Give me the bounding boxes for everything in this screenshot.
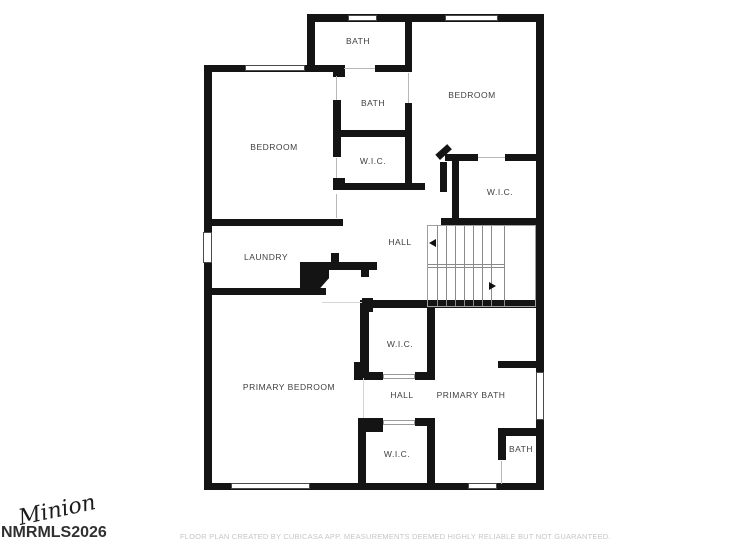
door-bathbottom [501, 461, 502, 484]
wall-hall-tab [331, 253, 339, 270]
stair-direction-arrow-down [489, 282, 496, 290]
stair-flight-divider [428, 264, 504, 265]
door-wicmid [336, 158, 337, 178]
stair-tread-line [491, 226, 492, 306]
room-label-hall-upper: HALL [388, 237, 411, 247]
stair-tread-line [446, 226, 447, 306]
stair-tread-line [437, 226, 438, 306]
wall-wiclower-right [427, 418, 435, 483]
wall-left-exterior [204, 65, 212, 490]
stair-landing-edge [504, 226, 505, 306]
door-bath2-right [408, 73, 409, 103]
stair-tread-line [482, 226, 483, 306]
door-wiclower [383, 420, 415, 425]
room-label-wic-middle: W.I.C. [360, 156, 386, 166]
wall-bathbottom-left [498, 428, 506, 460]
footer-disclaimer: FLOOR PLAN CREATED BY CUBICASA APP. MEAS… [180, 532, 611, 541]
door-wicupper [383, 374, 415, 379]
stair-direction-arrow-up [429, 239, 436, 247]
wall-hall-stub [361, 268, 369, 277]
wall-bath2-wic-divider [337, 130, 412, 137]
wall-bedroomright-bottom-b [505, 154, 537, 161]
stair-tread-line [473, 226, 474, 306]
door-wicright [478, 157, 505, 158]
stair-tread-line [455, 226, 456, 306]
wall-stair-top [441, 218, 537, 225]
wall-bath2-left [333, 100, 341, 157]
room-label-bedroom-right: BEDROOM [448, 90, 495, 100]
wall-junction-block [333, 65, 345, 77]
watermark-mls: NMRMLS2026 [1, 524, 107, 542]
room-label-bath-middle: BATH [361, 98, 385, 108]
room-label-bath-bottom: BATH [509, 444, 533, 454]
wall-pbath-stub [498, 361, 537, 368]
room-label-bath-top: BATH [346, 36, 370, 46]
room-label-hall-suite: HALL [390, 390, 413, 400]
wall-topbath-bottom-b [375, 65, 406, 72]
wall-top-exterior [307, 14, 544, 22]
room-label-bedroom-left: BEDROOM [250, 142, 297, 152]
wall-bedroomleft-bottom [204, 219, 343, 226]
room-label-primary-bath: PRIMARY BATH [437, 390, 506, 400]
window-bedroomleft [245, 65, 305, 71]
window-bedroomright [445, 15, 498, 21]
room-label-wic-suite-upper: W.I.C. [387, 339, 413, 349]
stair-flight-divider [428, 267, 504, 268]
window-primarybath [536, 372, 544, 420]
wall-pbr-right-lower [358, 418, 366, 483]
door-bath2-left [336, 76, 337, 100]
room-label-laundry: LAUNDRY [244, 252, 288, 262]
room-label-primary-bedroom: PRIMARY BEDROOM [243, 382, 335, 392]
door-bedroomleft [336, 194, 337, 218]
wall-bath2-right [405, 103, 412, 188]
wall-bedroomright-bottom-a [445, 154, 478, 161]
floor-plan: BATH BEDROOM BATH BEDROOM W.I.C. W.I.C. … [0, 0, 747, 560]
staircase [427, 225, 536, 307]
window-laundry [203, 232, 212, 263]
wall-wicmid-bottom [333, 183, 425, 190]
window-topbath [348, 15, 377, 21]
stair-tread-line [464, 226, 465, 306]
wall-topbath-left [307, 14, 315, 72]
wall-wicright-left [452, 155, 459, 223]
window-primarybedroom [231, 483, 310, 489]
door-topbath [344, 68, 375, 69]
window-bath-bottom [468, 483, 497, 489]
door-suite-entry [322, 302, 362, 303]
door-primary-bedroom [363, 378, 364, 418]
door-leaf-vertical [440, 162, 447, 192]
room-label-wic-right: W.I.C. [487, 187, 513, 197]
wall-topbath-bedroom-div [405, 14, 412, 72]
wall-wicupper-bottom-a [354, 372, 383, 380]
room-label-wic-suite-lower: W.I.C. [384, 449, 410, 459]
wall-wicupper-right [427, 308, 435, 380]
